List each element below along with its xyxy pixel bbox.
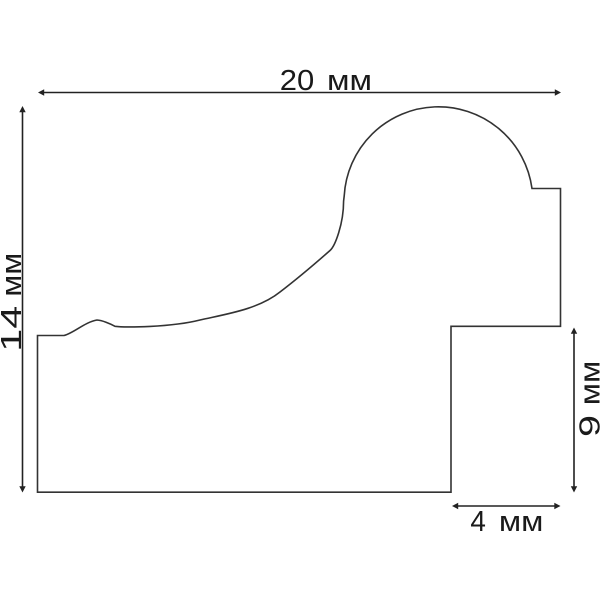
svg-text:мм: мм [575, 361, 600, 406]
svg-text:мм: мм [0, 253, 28, 297]
svg-text:9: 9 [575, 415, 600, 437]
svg-text:14: 14 [0, 306, 28, 352]
svg-text:мм: мм [327, 65, 372, 97]
svg-text:мм: мм [499, 506, 544, 538]
svg-text:20: 20 [280, 65, 315, 97]
svg-text:4: 4 [470, 506, 486, 538]
